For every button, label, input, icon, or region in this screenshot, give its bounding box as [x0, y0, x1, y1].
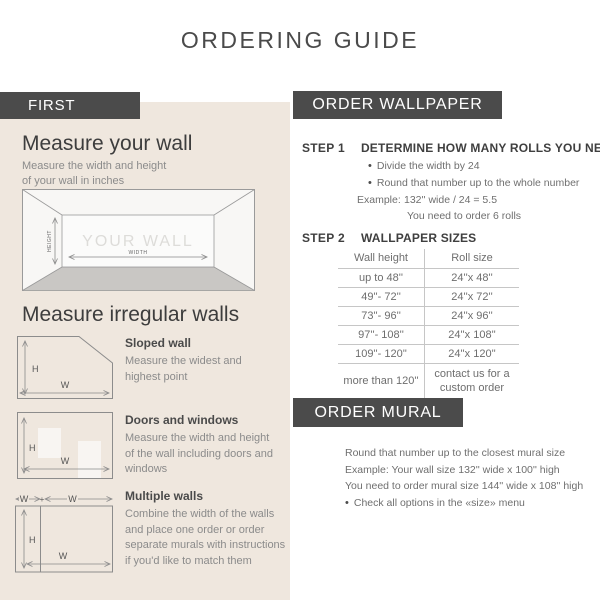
- table-row: 73''- 96'' 24''x 96'': [338, 307, 519, 326]
- mural-line: Example: Your wall size 132'' wide x 100…: [345, 462, 583, 479]
- mural-bullet-text: Check all options in the «size» menu: [354, 497, 525, 509]
- cell-wall-height: 109''- 120'': [338, 345, 425, 363]
- bullet-item: •Round that number up to the whole numbe…: [368, 175, 579, 192]
- bullet-icon: •: [345, 497, 349, 509]
- your-wall-label: YOUR WALL: [82, 233, 194, 250]
- w-label: W: [68, 494, 77, 504]
- bullet-text: Divide the width by 24: [377, 160, 480, 172]
- bullet-icon: •: [368, 177, 372, 189]
- bullet-text: Round that number up to the whole number: [377, 177, 580, 189]
- cell-wall-height: up to 48'': [338, 269, 425, 287]
- sloped-wall-title: Sloped wall: [125, 336, 191, 350]
- table-row: 49''- 72'' 24''x 72'': [338, 288, 519, 307]
- cell-roll-size: 24''x 48'': [425, 269, 519, 287]
- cell-roll-size: 24''x 120'': [425, 345, 519, 363]
- multiple-walls-diagram: W + W H W: [15, 487, 115, 573]
- step1-title: DETERMINE HOW MANY ROLLS YOU NEED: [361, 141, 600, 155]
- bullet-item: •Divide the width by 24: [368, 158, 579, 175]
- wall-3d-diagram: YOUR WALL HEIGHT WIDTH: [22, 189, 255, 291]
- plus-label: +: [40, 495, 45, 504]
- cell-wall-height: 97''- 108'': [338, 326, 425, 344]
- step1-row: STEP 1 DETERMINE HOW MANY ROLLS YOU NEED: [302, 141, 600, 155]
- step1-example-value: 132'' wide / 24 = 5.5: [404, 192, 497, 209]
- doors-windows-title: Doors and windows: [125, 413, 238, 427]
- col-header-roll-size: Roll size: [425, 249, 519, 268]
- sloped-wall-description: Measure the widest and highest point: [125, 354, 265, 385]
- w-label: W: [20, 494, 29, 504]
- table-row: 97''- 108'' 24''x 108'': [338, 326, 519, 345]
- cell-roll-size: 24''x 72'': [425, 288, 519, 306]
- bullet-icon: •: [368, 160, 372, 172]
- cell-roll-size: 24''x 108'': [425, 326, 519, 344]
- cell-roll-size: 24''x 96'': [425, 307, 519, 325]
- cell-roll-size: contact us for a custom order: [425, 364, 519, 398]
- measure-wall-heading: Measure your wall: [22, 132, 192, 156]
- step1-label: STEP 1: [302, 141, 345, 155]
- doors-windows-diagram: H W: [17, 412, 113, 479]
- mural-line: You need to order mural size 144'' wide …: [345, 478, 583, 495]
- h-label: H: [32, 364, 39, 374]
- measure-wall-description: Measure the width and height of your wal…: [22, 159, 177, 189]
- table-header-row: Wall height Roll size: [338, 249, 519, 269]
- door-shape: [78, 441, 101, 478]
- width-label: WIDTH: [129, 250, 148, 256]
- cell-wall-height: 49''- 72'': [338, 288, 425, 306]
- height-label: HEIGHT: [47, 230, 53, 252]
- w-label: W: [61, 380, 70, 390]
- order-wallpaper-header: ORDER WALLPAPER: [293, 91, 502, 119]
- h-label: H: [29, 535, 36, 545]
- wallpaper-sizes-table: Wall height Roll size up to 48'' 24''x 4…: [338, 249, 519, 398]
- table-row: up to 48'' 24''x 48'': [338, 269, 519, 288]
- window-shape: [38, 428, 61, 458]
- multiple-walls-title: Multiple walls: [125, 489, 203, 503]
- order-mural-header-label: ORDER MURAL: [314, 404, 441, 422]
- order-mural-header: ORDER MURAL: [293, 398, 463, 427]
- step2-row: STEP 2 WALLPAPER SIZES: [302, 231, 476, 245]
- doors-windows-description: Measure the width and height of the wall…: [125, 431, 275, 478]
- mural-instructions: Round that number up to the closest mura…: [345, 445, 583, 511]
- table-row: more than 120'' contact us for a custom …: [338, 364, 519, 398]
- col-header-wall-height: Wall height: [338, 249, 425, 268]
- cell-wall-height: 73''- 96'': [338, 307, 425, 325]
- order-wallpaper-header-label: ORDER WALLPAPER: [312, 96, 482, 114]
- page-title: ORDERING GUIDE: [0, 27, 600, 54]
- w-label: W: [61, 456, 70, 466]
- step2-title: WALLPAPER SIZES: [361, 231, 476, 245]
- step1-bullet-list: •Divide the width by 24 •Round that numb…: [368, 158, 579, 191]
- first-section-header: FIRST: [0, 92, 140, 119]
- mural-line: Round that number up to the closest mura…: [345, 445, 583, 462]
- w-label: W: [59, 551, 68, 561]
- first-section-header-label: FIRST: [28, 97, 75, 114]
- sloped-wall-diagram: H W: [17, 336, 113, 399]
- step2-label: STEP 2: [302, 231, 345, 245]
- step1-example-result: You need to order 6 rolls: [407, 208, 521, 225]
- cell-wall-height: more than 120'': [338, 364, 425, 398]
- step1-example-label: Example:: [357, 192, 401, 209]
- irregular-walls-heading: Measure irregular walls: [22, 303, 239, 327]
- table-row: 109''- 120'' 24''x 120'': [338, 345, 519, 364]
- h-label: H: [29, 443, 36, 453]
- mural-bullet-line: •Check all options in the «size» menu: [345, 495, 583, 512]
- multiple-walls-description: Combine the width of the walls and place…: [125, 507, 293, 569]
